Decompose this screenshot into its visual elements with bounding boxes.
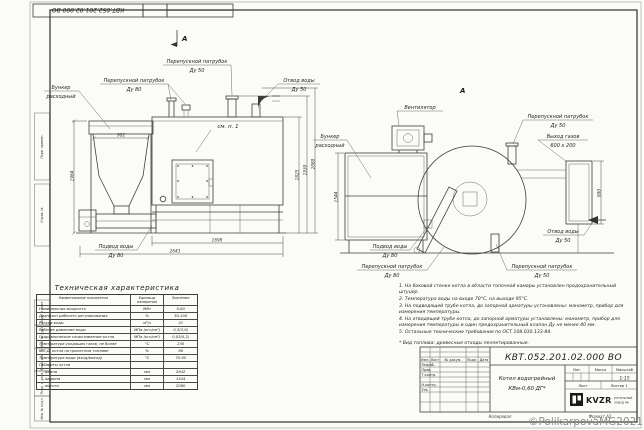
label-bypass50-line1: Перепускной патрубок: [167, 59, 228, 65]
table-cell: Габариты котла: [37, 362, 131, 368]
table-cell: Температура уходящих газов, не более: [37, 341, 131, 347]
tech-table: Наименование показателя Единицы измерени…: [36, 294, 198, 390]
table-cell: К.П.Д. котла на проектном топливе: [37, 348, 131, 354]
tb-col-docnum: № докум.: [445, 358, 462, 362]
table-row: Гидравлическое сопротивление котлаМПа (к…: [37, 333, 197, 340]
notes-block: 1. На боковой стенке котла в области топ…: [399, 284, 630, 347]
fuel-footnote: * Вид топлива: древесные отходы пеллетир…: [399, 341, 630, 347]
tb-col-podp: Подп.: [467, 358, 477, 362]
table-cell: 0,60: [164, 306, 197, 312]
tech-characteristics: Техническая характеристика Наименование …: [36, 283, 198, 390]
note-item: 1. На боковой стенке котла в области топ…: [399, 284, 630, 296]
label-bypass80-r-line1: Перепускной патрубок: [362, 264, 423, 270]
table-row: - высотамм2080: [37, 382, 197, 389]
dim-600: 600: [597, 189, 602, 197]
margin-field: Справ. №: [40, 207, 44, 223]
table-cell: [131, 362, 165, 368]
note-item: 3. На подводящей трубе котла, до запорно…: [399, 304, 630, 316]
margin-field: Перв. примен.: [40, 135, 44, 159]
dim-1825: 1825: [295, 169, 300, 180]
table-cell: - длина: [37, 369, 131, 375]
label-bypass80-line2: Ду 80: [126, 87, 142, 93]
table-cell: - ширина: [37, 376, 131, 382]
tech-header-name: Наименование показателя: [37, 295, 131, 305]
left-view: А: [44, 30, 320, 259]
table-cell: МПа (кгс/см²): [131, 327, 165, 333]
tb-scale-value: 1:15: [619, 376, 629, 382]
note-item: 5. Остальные технические требования по О…: [399, 330, 630, 336]
tb-col-data: Дата: [480, 358, 489, 362]
right-view: А: [313, 87, 614, 279]
label-bypass50-top-line2: Ду 50: [550, 123, 566, 129]
right-bunker: [345, 153, 427, 253]
table-cell: %: [131, 348, 165, 354]
view-label-a: А: [459, 87, 465, 95]
label-inlet80-line1: Подвод воды: [99, 244, 134, 250]
label-outlet50-r-line1: Отвод воды: [547, 229, 578, 235]
tb-row-prov: Пров.: [422, 368, 432, 372]
table-row: - ширинамм1544: [37, 375, 197, 382]
logo-caption-2: ЗАВОД РФ: [614, 401, 630, 405]
label-bunker-r-line1: Бункер: [321, 134, 340, 140]
tb-row-tkontr: Т.контр.: [421, 373, 437, 377]
tb-lit-label: Лит.: [573, 368, 581, 372]
table-row: Температура уходящих газов, не более°С23…: [37, 340, 197, 347]
table-cell: %: [131, 313, 165, 319]
table-cell: Расход воды: [37, 320, 131, 326]
left-screw-feeder: [79, 210, 156, 231]
tb-name-line1: Котел водогрейный: [499, 376, 556, 382]
table-row: Температура воды (вход/выход)°С70-95: [37, 354, 197, 361]
table-cell: 2080: [164, 383, 197, 389]
label-gas-out-line2: 600 х 200: [550, 143, 575, 149]
table-cell: Номинальная мощность: [37, 306, 131, 312]
dim-2080: 2080: [311, 158, 316, 169]
tb-doc-number: КВТ.052.201.02.000 ВО: [505, 353, 622, 363]
table-cell: мм: [131, 369, 165, 375]
table-cell: 2642: [164, 369, 197, 375]
margin-field: Инв. № подл.: [40, 398, 44, 420]
table-row: Расход водым³/ч21: [37, 319, 197, 326]
table-cell: 70-95: [164, 355, 197, 361]
table-row: Диапазон рабочего регулирования%30-100: [37, 312, 197, 319]
table-cell: мм: [131, 376, 165, 382]
label-bypass50-top-line1: Перепускной патрубок: [528, 114, 589, 120]
notes-list: 1. На боковой стенке котла в области топ…: [399, 284, 630, 337]
copied-label: Копировал: [489, 414, 512, 419]
tb-mass-label: Масса: [595, 368, 606, 372]
tech-header-units: Единицы измерения: [131, 295, 165, 305]
label-bunker-line1: Бункер: [52, 85, 71, 91]
table-row: К.П.Д. котла на проектном топливе%80: [37, 347, 197, 354]
table-cell: Температура воды (вход/выход): [37, 355, 131, 361]
label-see-note: см. п. 1: [217, 124, 238, 130]
table-cell: 0,02(0,2): [164, 334, 197, 340]
label-outlet50-line1: Отвод воды: [283, 78, 314, 84]
table-cell: м³/ч: [131, 320, 165, 326]
table-cell: 30-100: [164, 313, 197, 319]
tb-col-list: Лист: [431, 358, 440, 362]
table-cell: - высота: [37, 383, 131, 389]
table-cell: МВт: [131, 306, 165, 312]
label-outlet50-r-line2: Ду 50: [555, 238, 571, 244]
table-row: - длинамм2642: [37, 368, 197, 375]
tech-header-value: Значение: [164, 295, 197, 305]
left-boiler: [152, 117, 283, 233]
table-cell: °С: [131, 355, 165, 361]
label-bypass80-r-line2: Ду 80: [384, 273, 400, 279]
tb-row-nkontr: Н.контр.: [422, 383, 437, 387]
title-block: Изм. Лист № докум. Подп. Дата Разраб. Пр…: [420, 347, 637, 419]
right-boiler: [414, 143, 526, 254]
tech-table-header: Наименование показателя Единицы измерени…: [37, 295, 197, 305]
tb-row-razrab: Разраб.: [422, 363, 435, 367]
dim-1930: 1930: [303, 164, 308, 175]
title-block-right-grid: Лит. Масса Масштаб 1:15 Лист Листов 1: [565, 365, 637, 389]
kvzr-logo: KVZR КОТЕЛЬНЫЙ ЗАВОД РФ: [570, 393, 632, 406]
dim-902: 902: [117, 133, 125, 138]
table-cell: 1544: [164, 376, 197, 382]
tb-row-utv: Утв.: [422, 388, 429, 392]
label-bunker-r-line2: расходный: [315, 143, 346, 149]
logo-text: KVZR: [586, 396, 612, 405]
table-cell: [164, 362, 197, 368]
table-cell: 21: [164, 320, 197, 326]
right-fan: [392, 126, 432, 153]
label-bypass50-b-line1: Перепускной патрубок: [512, 264, 573, 270]
table-row: Габариты котла: [37, 361, 197, 368]
dim-2643: 2643: [170, 249, 181, 254]
table-cell: Гидравлическое сопротивление котла: [37, 334, 131, 340]
label-gas-out-line1: Выход газов: [547, 134, 580, 140]
watermark-text: ©PolikarpovaMG2021: [528, 416, 643, 428]
table-cell: 80: [164, 348, 197, 354]
section-label-a: А: [181, 35, 187, 43]
tb-name-line2: КВм-0,60 ДГ*: [508, 386, 545, 392]
tech-table-body: Номинальная мощностьМВт0,60Диапазон рабо…: [37, 305, 197, 389]
table-row: Рабочее давление водыМПа (кгс/см²)0,3(3,…: [37, 326, 197, 333]
logo-caption-1: КОТЕЛЬНЫЙ: [614, 395, 632, 400]
tech-table-title: Техническая характеристика: [36, 283, 198, 292]
label-bypass50-b-line2: Ду 50: [534, 273, 550, 279]
tb-scale-label: Масштаб: [616, 368, 634, 372]
table-cell: 0,3(3,0): [164, 327, 197, 333]
table-cell: Рабочее давление воды: [37, 327, 131, 333]
corner-stamp-number: КВТ.052.201.02.000 ВО: [52, 6, 125, 13]
dim-1544: 1544: [334, 191, 339, 202]
note-item: 2. Температура воды на входе 70°С, на вы…: [399, 297, 630, 303]
tb-col-izm: Изм.: [421, 358, 429, 362]
left-dimensions: 902 1964 1825 1930 2080 1698 2643: [70, 88, 319, 257]
left-top-fittings: [167, 96, 280, 117]
table-cell: мм: [131, 383, 165, 389]
table-cell: 230: [164, 341, 197, 347]
label-bunker-line2: расходный: [46, 94, 77, 100]
table-row: Номинальная мощностьМВт0,60: [37, 305, 197, 312]
title-block-left-grid: Изм. Лист № докум. Подп. Дата Разраб. Пр…: [420, 347, 490, 412]
label-inlet80-r-line2: Ду 80: [382, 253, 398, 259]
table-cell: °С: [131, 341, 165, 347]
label-fan: Вентилятор: [404, 105, 435, 111]
drawing-sheet: КВТ.052.201.02.000 ВО Перв. примен. Спра…: [0, 0, 644, 430]
dim-1698: 1698: [212, 238, 223, 243]
label-inlet80-r-line1: Подвод воды: [373, 244, 408, 250]
tb-sheet-label: Лист: [578, 384, 587, 388]
tb-sheets-label: Листов 1: [611, 384, 628, 388]
label-bypass80-line1: Перепускной патрубок: [104, 78, 165, 84]
right-dimensions: 1544 600: [334, 153, 605, 240]
table-cell: Диапазон рабочего регулирования: [37, 313, 131, 319]
label-bypass50-line2: Ду 50: [189, 68, 205, 74]
dim-1964: 1964: [70, 170, 75, 181]
table-cell: МПа (кгс/см²): [131, 334, 165, 340]
note-item: 4. На отводящей трубе котла, до запорной…: [399, 317, 630, 329]
